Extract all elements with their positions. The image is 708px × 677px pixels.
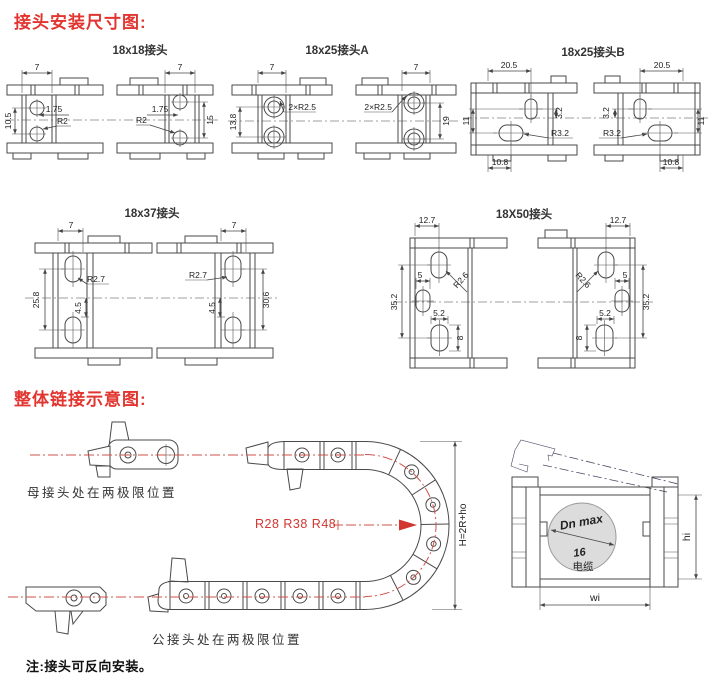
dim-label: 4.5 — [73, 302, 83, 314]
dim-label: 25.8 — [31, 291, 41, 308]
dim-label: 7 — [69, 220, 74, 230]
dim-label: 13.8 — [228, 113, 238, 130]
dim-label: R2.6 — [574, 270, 594, 290]
chain-upper-run — [246, 442, 365, 491]
dim-label: 35.2 — [389, 293, 399, 310]
dim-label: 2×R2.5 — [364, 102, 392, 112]
dim-label: 1.75 — [152, 104, 169, 114]
dim-label: 30.6 — [261, 291, 271, 308]
dim-label: 12.7 — [610, 215, 627, 225]
cable-text-label: 电缆 — [573, 560, 594, 573]
diagram-18x25b: 20.5 3.2 11 R3.2 10.8 20.5 3.2 — [463, 57, 708, 175]
chain-lower-run — [148, 558, 365, 612]
dim-label: R3.2 — [551, 128, 569, 138]
dim-label: 10.5 — [3, 112, 13, 129]
dim-label: 10.8 — [663, 157, 680, 167]
dim-label: 7 — [270, 62, 275, 72]
dim-label: H=2R+ho — [458, 503, 469, 546]
dim-label: 10.8 — [492, 157, 509, 167]
diagram-18x18: 7 10.5 1.75 R2 7 1.75 R2 15 — [5, 57, 220, 169]
wi-dimension: wi — [540, 587, 650, 610]
view-right: 7 1.75 R2 15 — [117, 62, 215, 159]
view-left: 7 10.5 1.75 R2 — [3, 62, 103, 159]
female-connector-label: 母接头处在两极限位置 — [27, 482, 177, 501]
bend-radii-label: R28 R38 R48 — [255, 517, 336, 531]
dim-label: 20.5 — [501, 60, 518, 70]
dim-label: R2.7 — [189, 270, 207, 280]
view-right: 7 2×R2.5 19 — [356, 62, 456, 159]
pivoting-link — [511, 440, 678, 492]
view-left: 20.5 3.2 11 R3.2 10.8 — [461, 60, 577, 172]
assembly-title: 整体链接示意图: — [14, 385, 147, 410]
dim-label: 5 — [623, 270, 628, 280]
diagram-18x25a: 7 13.8 2×R2.5 7 2×R2.5 19 — [228, 57, 460, 169]
dim-label: 3.2 — [554, 107, 564, 119]
dim-label: R2.7 — [87, 274, 105, 284]
dim-label: 4.5 — [207, 302, 217, 314]
dim-label: 12.7 — [419, 215, 436, 225]
dim-label: 5.2 — [433, 308, 445, 318]
view-left: 7 25.8 R2.7 4.5 — [31, 220, 152, 365]
dim-label: R2 — [57, 116, 68, 126]
chain-assembly: H=2R+ho — [0, 415, 492, 653]
dim-label: wi — [589, 592, 600, 604]
dim-label: 5 — [418, 270, 423, 280]
male-connector-extreme — [26, 587, 106, 634]
dim-label: 7 — [232, 220, 237, 230]
view-right: 7 R2.7 30.6 4.5 — [157, 220, 273, 365]
dim-label: 8 — [455, 335, 465, 340]
page-title: 接头安装尺寸图: — [14, 8, 147, 33]
dim-label: 19 — [441, 116, 451, 126]
view-left: 12.7 35.2 5 5.2 8 R2.6 — [389, 215, 507, 368]
dim-label: 35.2 — [641, 293, 651, 310]
view-right: 12.7 35.2 5 5.2 8 R2.6 — [538, 215, 651, 368]
footnote: 注:接头可反向安装。 — [26, 656, 152, 675]
dim-label: 11 — [461, 116, 471, 125]
female-connector-extreme — [88, 422, 178, 477]
dim-label: 8 — [574, 335, 584, 340]
dim-label: 11 — [696, 116, 706, 125]
dim-label: 7 — [414, 62, 419, 72]
view-right: 20.5 3.2 11 R3.2 10.8 — [594, 60, 706, 172]
cross-section: Dn max 16 电缆 hi wi — [495, 418, 708, 623]
diagram-18x50: 12.7 35.2 5 5.2 8 R2.6 12.7 — [393, 218, 653, 378]
male-connector-label: 公接头处在两极限位置 — [152, 629, 302, 648]
dim-label: R2 — [136, 115, 147, 125]
dim-label: hi — [681, 533, 693, 541]
dim-label: 7 — [178, 62, 183, 72]
dim-label: 5.2 — [599, 308, 611, 318]
dim-label: 20.5 — [654, 60, 671, 70]
dim-label: 3.2 — [601, 107, 611, 119]
dim-label: R3.2 — [603, 128, 621, 138]
page: 接头安装尺寸图: 18x18接头 18x25接头A 18x25接头B 18x37… — [0, 0, 708, 677]
dim-label: 1.75 — [46, 104, 63, 114]
diagram-label-18x18: 18x18接头 — [85, 42, 195, 58]
diagram-label-18x37: 18x37接头 — [97, 205, 207, 221]
diagram-18x37: 7 25.8 R2.7 4.5 7 R2.7 30.6 — [25, 220, 280, 372]
dim-label: 15 — [205, 115, 215, 125]
dim-label: 7 — [35, 62, 40, 72]
radius-arrow-icon — [399, 520, 417, 531]
dim-label: 2×R2.5 — [288, 102, 316, 112]
height-dimension: H=2R+ho — [420, 442, 469, 610]
hi-dimension: hi — [678, 495, 702, 579]
view-left: 7 13.8 2×R2.5 — [228, 62, 332, 159]
diagram-label-18x25a: 18x25接头A — [282, 42, 392, 58]
